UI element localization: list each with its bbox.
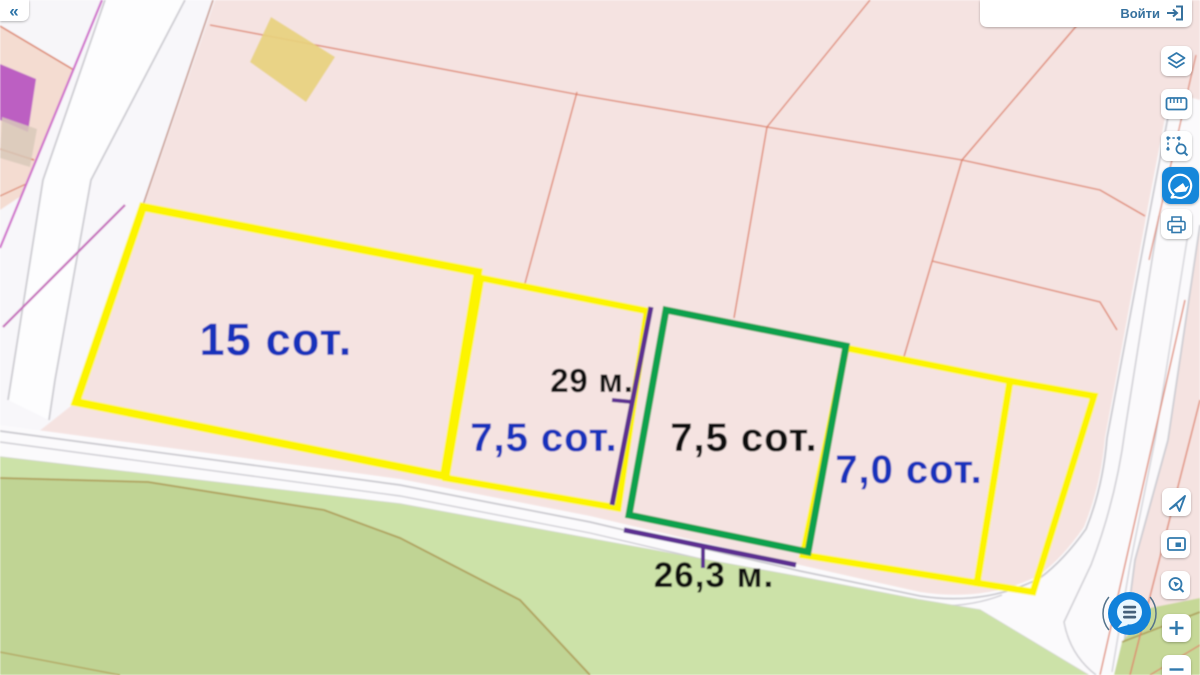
svg-text:15 сот.: 15 сот. (200, 314, 353, 365)
svg-text:26,3 м.: 26,3 м. (654, 556, 774, 595)
svg-text:7,5 сот.: 7,5 сот. (470, 416, 618, 460)
svg-text:29 м.: 29 м. (550, 362, 633, 399)
svg-text:«: « (9, 2, 18, 21)
svg-text:7,5 сот.: 7,5 сот. (670, 416, 818, 460)
svg-text:7,0 сот.: 7,0 сот. (835, 448, 983, 492)
svg-text:Войти: Войти (1120, 6, 1160, 21)
